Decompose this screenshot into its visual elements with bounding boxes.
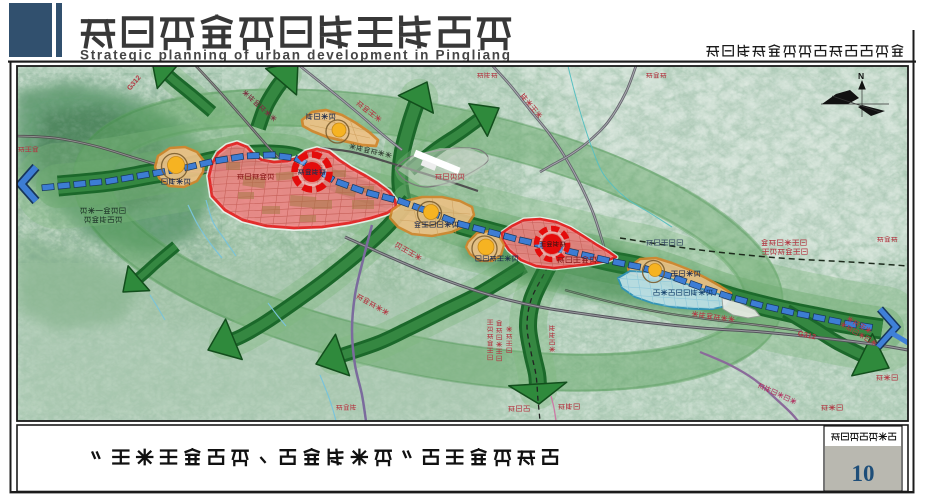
svg-text:10: 10 bbox=[852, 461, 875, 486]
svg-text:N: N bbox=[858, 71, 864, 81]
svg-text:Strategic planning of urban de: Strategic planning of urban development … bbox=[80, 48, 510, 63]
